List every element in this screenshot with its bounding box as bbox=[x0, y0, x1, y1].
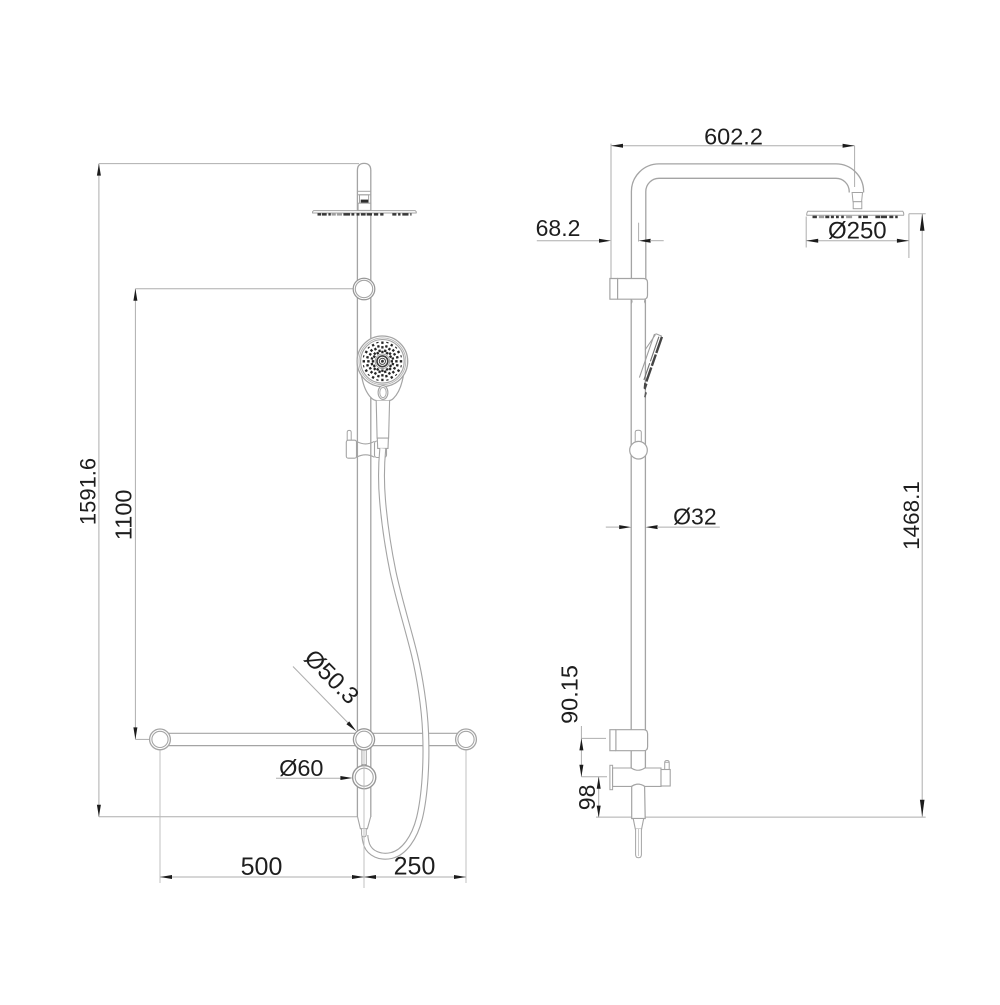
svg-text:Ø60: Ø60 bbox=[279, 755, 323, 781]
svg-text:68.2: 68.2 bbox=[536, 215, 581, 241]
svg-text:98: 98 bbox=[574, 785, 600, 811]
svg-text:1100: 1100 bbox=[111, 490, 137, 541]
svg-text:602.2: 602.2 bbox=[704, 124, 763, 150]
svg-text:1468.1: 1468.1 bbox=[899, 481, 924, 550]
svg-text:Ø250: Ø250 bbox=[828, 218, 887, 245]
svg-text:90.15: 90.15 bbox=[557, 665, 583, 724]
svg-text:500: 500 bbox=[241, 853, 283, 881]
svg-text:Ø32: Ø32 bbox=[673, 504, 716, 530]
svg-text:1591.6: 1591.6 bbox=[76, 458, 101, 525]
svg-text:Ø50.3: Ø50.3 bbox=[299, 645, 364, 710]
svg-text:250: 250 bbox=[394, 852, 436, 880]
